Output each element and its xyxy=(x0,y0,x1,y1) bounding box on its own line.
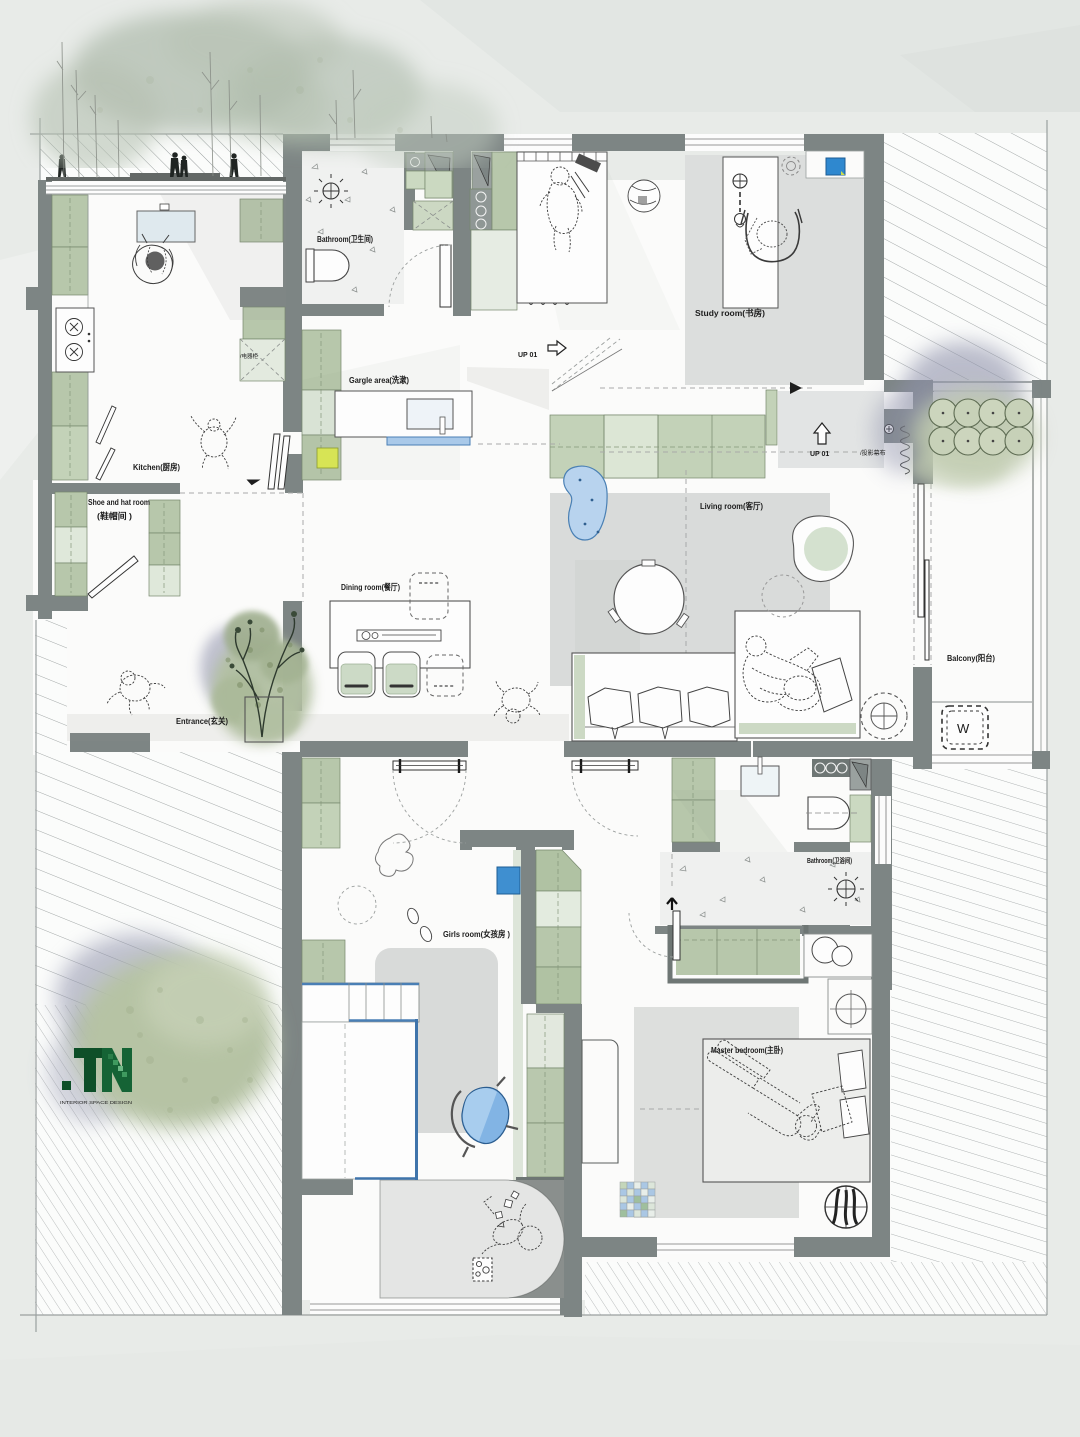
svg-text:(鞋帽间 ): (鞋帽间 ) xyxy=(97,511,132,521)
svg-text:Dining room(餐厅): Dining room(餐厅) xyxy=(341,582,400,592)
svg-text:W: W xyxy=(957,721,970,736)
svg-text:Kitchen(厨房): Kitchen(厨房) xyxy=(133,462,180,472)
svg-text:INTERIOR SPACE DESIGN: INTERIOR SPACE DESIGN xyxy=(60,1100,132,1105)
svg-text:Gargle area(洗漱): Gargle area(洗漱) xyxy=(349,375,409,385)
svg-text:Bathroom(卫浴间): Bathroom(卫浴间) xyxy=(807,856,852,865)
svg-text:UP 01: UP 01 xyxy=(810,451,829,458)
svg-text:Living room(客厅): Living room(客厅) xyxy=(700,501,763,511)
svg-text:/投影幕布: /投影幕布 xyxy=(860,449,886,457)
svg-text:Entrance(玄关): Entrance(玄关) xyxy=(176,716,228,726)
svg-text:UP 01: UP 01 xyxy=(518,352,537,359)
svg-text:/电器柜: /电器柜 xyxy=(240,352,259,360)
svg-text:Bathroom(卫生间): Bathroom(卫生间) xyxy=(317,234,373,244)
svg-text:Master bedroom(主卧): Master bedroom(主卧) xyxy=(711,1045,783,1055)
svg-text:Shoe and hat room: Shoe and hat room xyxy=(88,497,150,507)
svg-text:Balcony(阳台): Balcony(阳台) xyxy=(947,653,995,663)
svg-text:Girls room(女孩房 ): Girls room(女孩房 ) xyxy=(443,929,510,939)
svg-text:Study room(书房): Study room(书房) xyxy=(695,308,765,318)
